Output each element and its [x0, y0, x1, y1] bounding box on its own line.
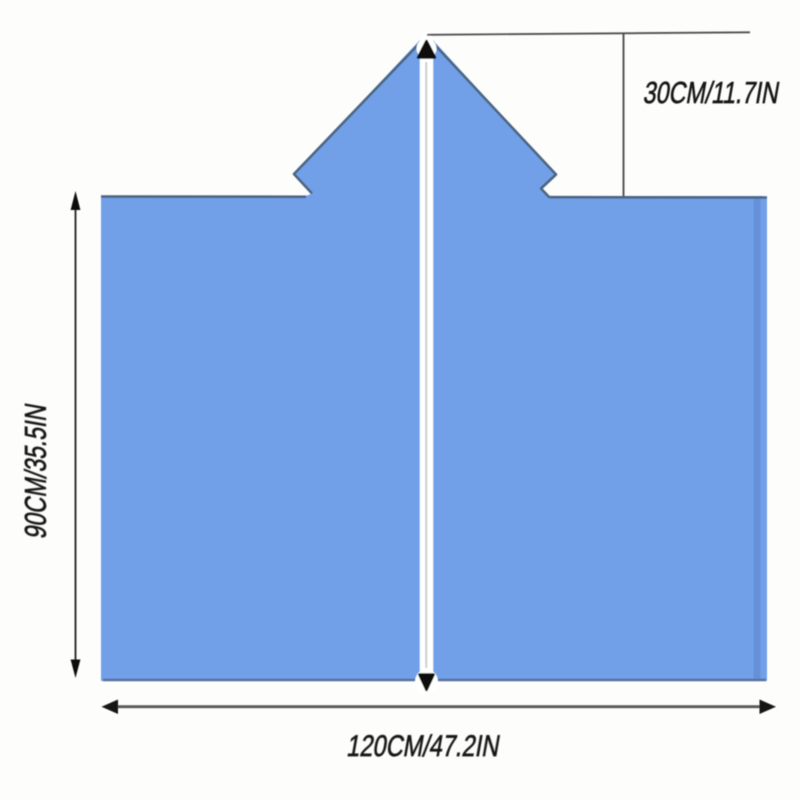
svg-text:120CM/47.2IN: 120CM/47.2IN	[345, 728, 503, 763]
svg-text:30CM/11.7IN: 30CM/11.7IN	[641, 75, 782, 110]
svg-text:90CM/35.5IN: 90CM/35.5IN	[18, 401, 53, 541]
